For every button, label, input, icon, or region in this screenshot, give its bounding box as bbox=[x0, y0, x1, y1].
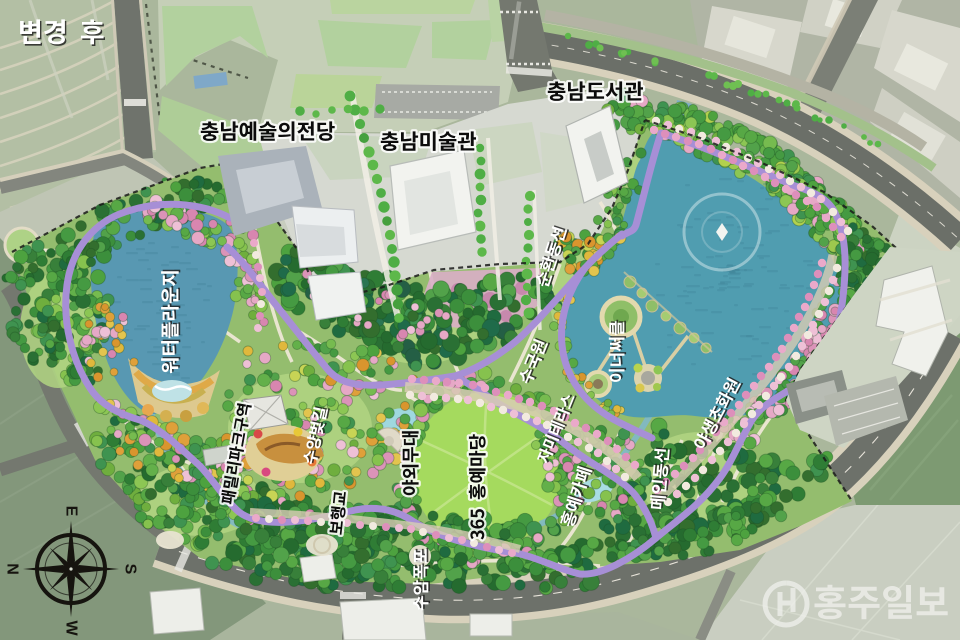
svg-text:N: N bbox=[4, 563, 21, 575]
svg-text:S: S bbox=[122, 564, 139, 575]
svg-text:E: E bbox=[63, 506, 80, 517]
svg-text:W: W bbox=[63, 620, 80, 636]
